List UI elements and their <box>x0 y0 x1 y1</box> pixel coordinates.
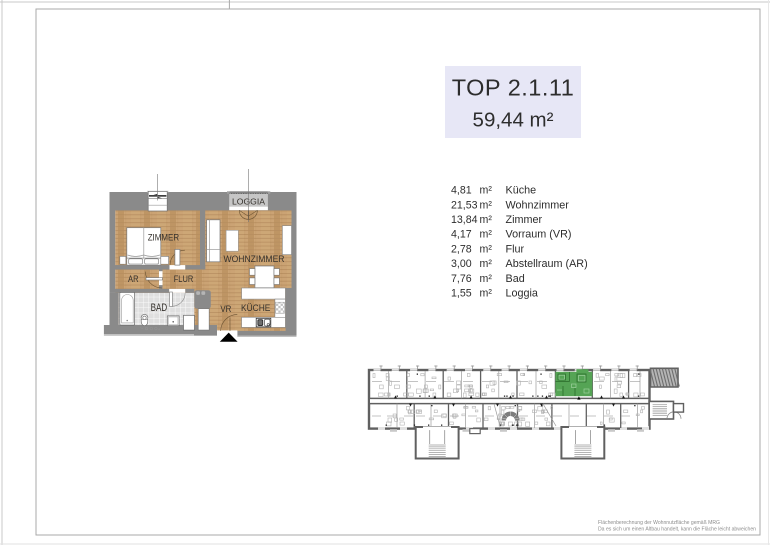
svg-text:m²: m² <box>480 273 493 285</box>
svg-text:Loggia: Loggia <box>506 288 538 300</box>
svg-text:FLUR: FLUR <box>174 274 194 284</box>
svg-text:TOP 2.1.11: TOP 2.1.11 <box>452 75 575 101</box>
svg-text:1,55: 1,55 <box>451 288 472 300</box>
svg-text:m²: m² <box>480 258 493 270</box>
svg-text:WOHNZIMMER: WOHNZIMMER <box>224 254 285 264</box>
svg-text:m²: m² <box>480 185 493 197</box>
svg-text:13,84: 13,84 <box>451 214 478 226</box>
svg-text:4,81: 4,81 <box>451 185 472 197</box>
svg-text:BAD: BAD <box>151 302 168 314</box>
svg-text:Bad: Bad <box>506 273 525 285</box>
svg-text:Küche: Küche <box>506 185 537 197</box>
svg-text:AR: AR <box>128 274 139 284</box>
svg-text:Wohnzimmer: Wohnzimmer <box>506 199 570 211</box>
svg-text:m²: m² <box>480 214 493 226</box>
svg-text:ZIMMER: ZIMMER <box>148 233 180 243</box>
svg-text:Abstellraum (AR): Abstellraum (AR) <box>506 258 588 270</box>
svg-text:Zimmer: Zimmer <box>506 214 543 226</box>
svg-text:4,17: 4,17 <box>451 229 472 241</box>
svg-text:VR: VR <box>220 304 231 315</box>
svg-text:Da es sich um einen Altbau han: Da es sich um einen Altbau handelt, kann… <box>598 527 756 533</box>
svg-text:Flächenberechnung der Wohnnutz: Flächenberechnung der Wohnnutzfläche gem… <box>598 520 720 526</box>
svg-text:2,78: 2,78 <box>451 243 472 255</box>
svg-text:m²: m² <box>480 243 493 255</box>
svg-text:3,00: 3,00 <box>451 258 472 270</box>
svg-text:m²: m² <box>480 288 493 300</box>
svg-text:Vorraum (VR): Vorraum (VR) <box>506 229 572 241</box>
svg-text:KÜCHE: KÜCHE <box>241 303 270 314</box>
svg-text:59,44 m²: 59,44 m² <box>473 109 554 132</box>
svg-text:Flur: Flur <box>506 243 525 255</box>
svg-text:7,76: 7,76 <box>451 273 472 285</box>
svg-text:m²: m² <box>480 199 493 211</box>
svg-text:21,53: 21,53 <box>451 199 478 211</box>
svg-text:m²: m² <box>480 229 493 241</box>
